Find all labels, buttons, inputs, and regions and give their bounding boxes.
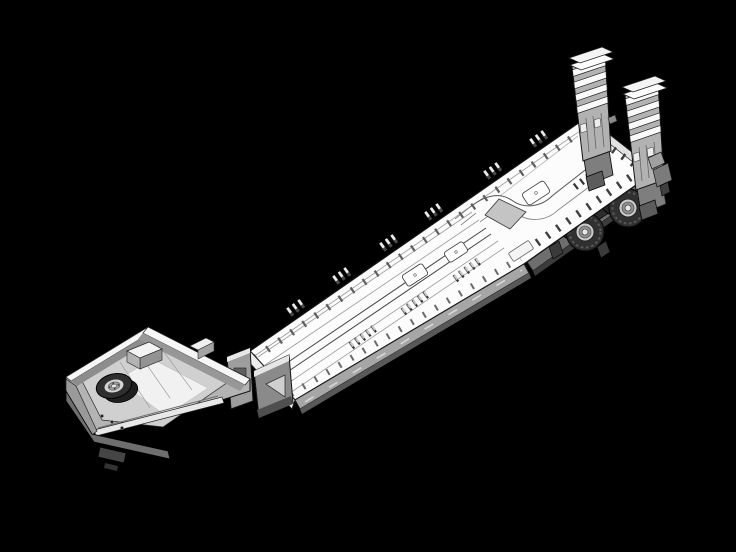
trailer-3d-render xyxy=(0,0,736,552)
marker-light xyxy=(100,414,103,417)
cad-viewport[interactable]: Monochrome isometric CAD rendering of a … xyxy=(0,0,736,552)
wheel-hub xyxy=(582,229,588,235)
marker-light xyxy=(110,420,113,423)
wheel-hub xyxy=(625,205,631,211)
marker-light xyxy=(120,426,123,429)
